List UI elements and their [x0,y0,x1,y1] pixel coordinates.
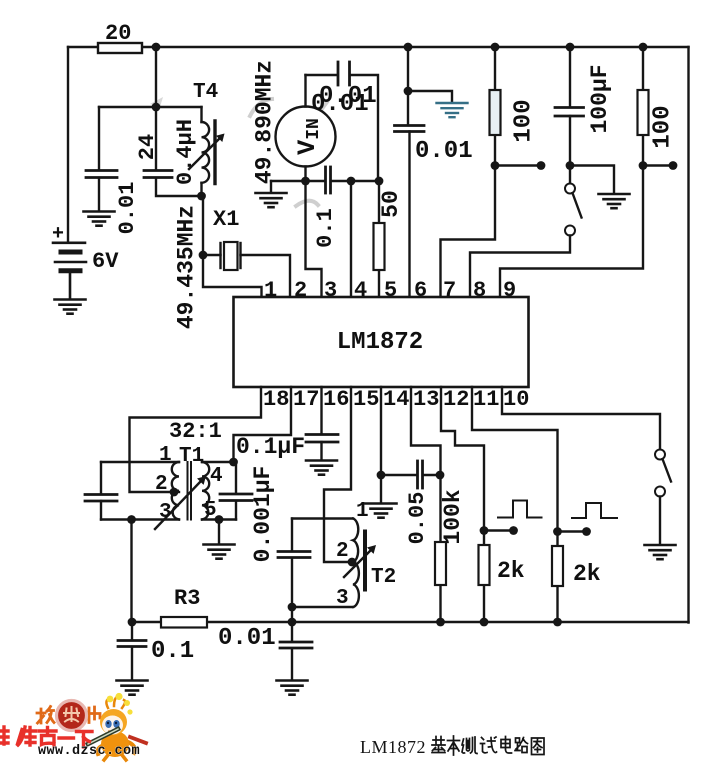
svg-text:2k: 2k [573,561,601,587]
svg-text:0.01: 0.01 [115,182,140,235]
svg-text:49.435MHz: 49.435MHz [174,205,200,329]
svg-text:0.01: 0.01 [218,625,276,652]
svg-text:R3: R3 [174,586,200,611]
svg-text:9: 9 [503,278,516,303]
svg-text:13: 13 [413,387,439,412]
svg-text:12: 12 [443,387,469,412]
svg-text:T4: T4 [193,81,218,104]
svg-text:LM1872: LM1872 [360,737,426,757]
svg-text:T2: T2 [371,566,396,589]
svg-text:7: 7 [443,278,456,303]
svg-text:www.dzsc.com: www.dzsc.com [38,744,140,759]
svg-text:17: 17 [293,387,319,412]
svg-text:2: 2 [294,278,307,303]
svg-text:11: 11 [473,387,499,412]
svg-text:18: 18 [263,387,289,412]
svg-text:0.05: 0.05 [405,492,430,545]
svg-text:14: 14 [383,387,409,412]
svg-text:10: 10 [503,387,529,412]
svg-text:1: 1 [356,500,369,523]
svg-text:3: 3 [324,278,337,303]
svg-text:100μF: 100μF [587,64,613,133]
svg-text:6: 6 [414,278,427,303]
svg-text:2k: 2k [497,558,525,584]
svg-text:16: 16 [323,387,349,412]
svg-text:X1: X1 [213,207,239,232]
svg-text:32:1: 32:1 [169,419,222,444]
svg-text:100: 100 [649,105,676,148]
svg-text:2: 2 [155,473,168,496]
svg-text:100: 100 [510,99,537,142]
svg-text:5: 5 [384,278,397,303]
svg-text:3: 3 [159,501,172,524]
svg-text:0.01: 0.01 [415,138,473,165]
svg-text:6V: 6V [92,249,119,274]
svg-text:8: 8 [473,278,486,303]
svg-text:100k: 100k [440,489,466,544]
svg-text:+: + [52,223,64,246]
svg-text:1: 1 [159,444,172,467]
svg-text:LM1872: LM1872 [337,329,423,356]
svg-text:49.890MHz: 49.890MHz [252,60,278,184]
svg-text:20: 20 [105,21,131,46]
svg-text:0.4μH: 0.4μH [173,119,198,185]
svg-text:0.001μF: 0.001μF [250,466,276,563]
svg-text:0.01: 0.01 [319,83,377,110]
svg-text:0.1: 0.1 [313,208,338,248]
svg-text:2: 2 [336,540,349,563]
svg-text:15: 15 [353,387,379,412]
svg-text:4: 4 [210,465,223,488]
svg-text:3: 3 [336,587,349,610]
svg-text:0.1μF: 0.1μF [236,434,305,460]
svg-text:4: 4 [354,278,367,303]
svg-text:50: 50 [378,190,404,218]
svg-text:1: 1 [264,278,277,303]
svg-text:0.1: 0.1 [151,638,194,665]
svg-text:24: 24 [135,134,160,160]
